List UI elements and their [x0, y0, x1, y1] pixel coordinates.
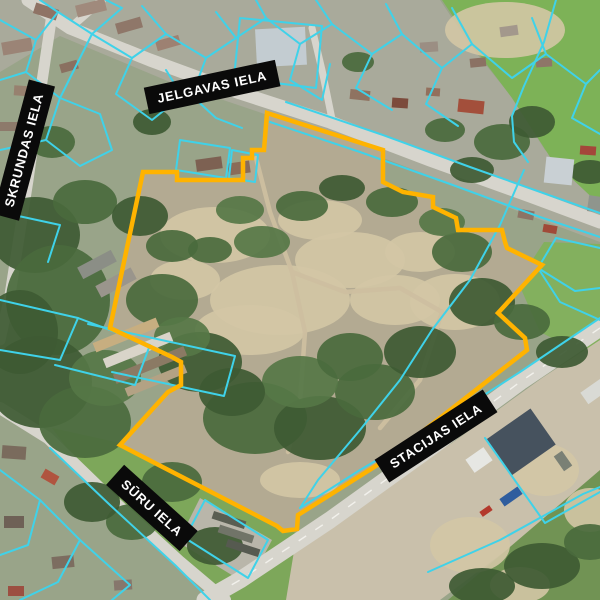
building — [457, 99, 484, 115]
tree-canopy — [509, 106, 555, 138]
tree-canopy — [536, 336, 588, 368]
tree-canopy — [276, 191, 328, 221]
orthophoto-canvas — [0, 0, 600, 600]
sand-patch — [430, 517, 510, 573]
building — [470, 57, 487, 68]
tree-canopy — [425, 118, 465, 142]
tree-canopy — [133, 109, 171, 135]
building — [580, 145, 597, 155]
tree-canopy — [112, 196, 168, 236]
building — [0, 122, 18, 131]
building — [392, 97, 409, 108]
aerial-map-figure: JELGAVAS IELASKRUNDAS IELASTACIJAS IELAS… — [0, 0, 600, 600]
building — [8, 586, 24, 596]
building — [14, 85, 37, 97]
tree-canopy — [53, 180, 117, 224]
tree-canopy — [384, 326, 456, 378]
tree-canopy — [450, 157, 494, 183]
tree-canopy — [234, 226, 290, 258]
building — [4, 516, 24, 528]
building — [544, 157, 575, 186]
tree-canopy — [432, 232, 492, 272]
tree-canopy — [216, 196, 264, 224]
building — [2, 445, 27, 460]
tree-canopy — [319, 175, 365, 201]
tree-canopy — [188, 237, 232, 263]
tree-canopy — [317, 333, 383, 381]
